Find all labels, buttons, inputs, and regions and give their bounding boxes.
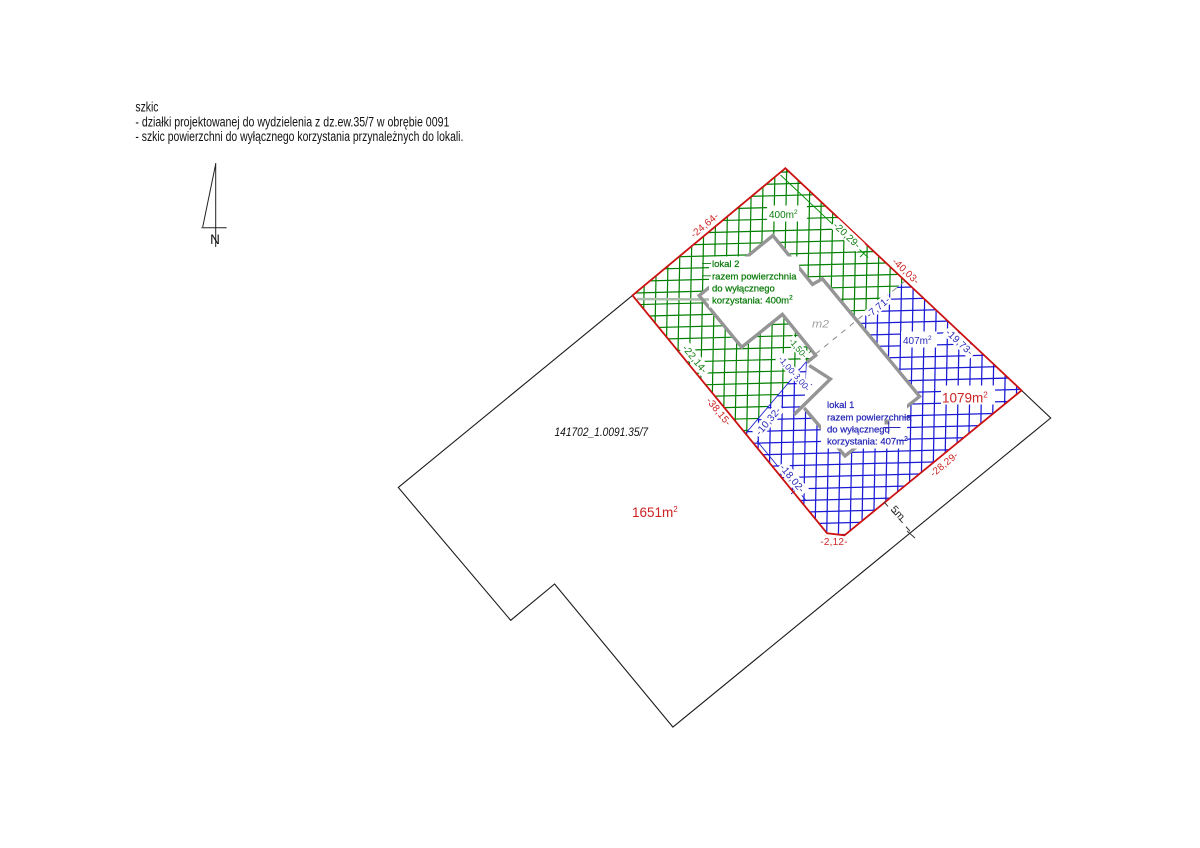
svg-text:korzystania: 407m2: korzystania: 407m2 [827, 436, 908, 448]
svg-text:407m2: 407m2 [903, 335, 932, 347]
svg-text:1651m2: 1651m2 [632, 505, 678, 520]
svg-text:-2,12-: -2,12- [820, 537, 847, 548]
svg-text:5m: 5m [888, 504, 907, 524]
svg-text:do wyłącznego: do wyłącznego [827, 425, 890, 436]
svg-text:N: N [210, 232, 220, 247]
svg-text:razem powierzchnia: razem powierzchnia [827, 413, 912, 424]
svg-text:korzystania: 400m2: korzystania: 400m2 [712, 295, 793, 307]
svg-text:- szkic powierzchni do wyłączn: - szkic powierzchni do wyłącznego korzys… [135, 129, 463, 144]
svg-text:lokal 2: lokal 2 [712, 259, 739, 270]
svg-text:m2: m2 [812, 319, 829, 331]
svg-text:do wyłącznego: do wyłącznego [712, 284, 775, 295]
svg-text:141702_1.0091.35/7: 141702_1.0091.35/7 [555, 427, 649, 439]
svg-text:szkic: szkic [135, 100, 158, 115]
svg-text:lokal 1: lokal 1 [827, 400, 854, 411]
svg-text:400m2: 400m2 [769, 209, 798, 221]
svg-text:razem powierzchnia: razem powierzchnia [712, 272, 797, 283]
svg-text:- działki projektowanej do wyd: - działki projektowanej do wydzielenia z… [135, 114, 449, 129]
svg-text:1079m2: 1079m2 [942, 391, 988, 406]
